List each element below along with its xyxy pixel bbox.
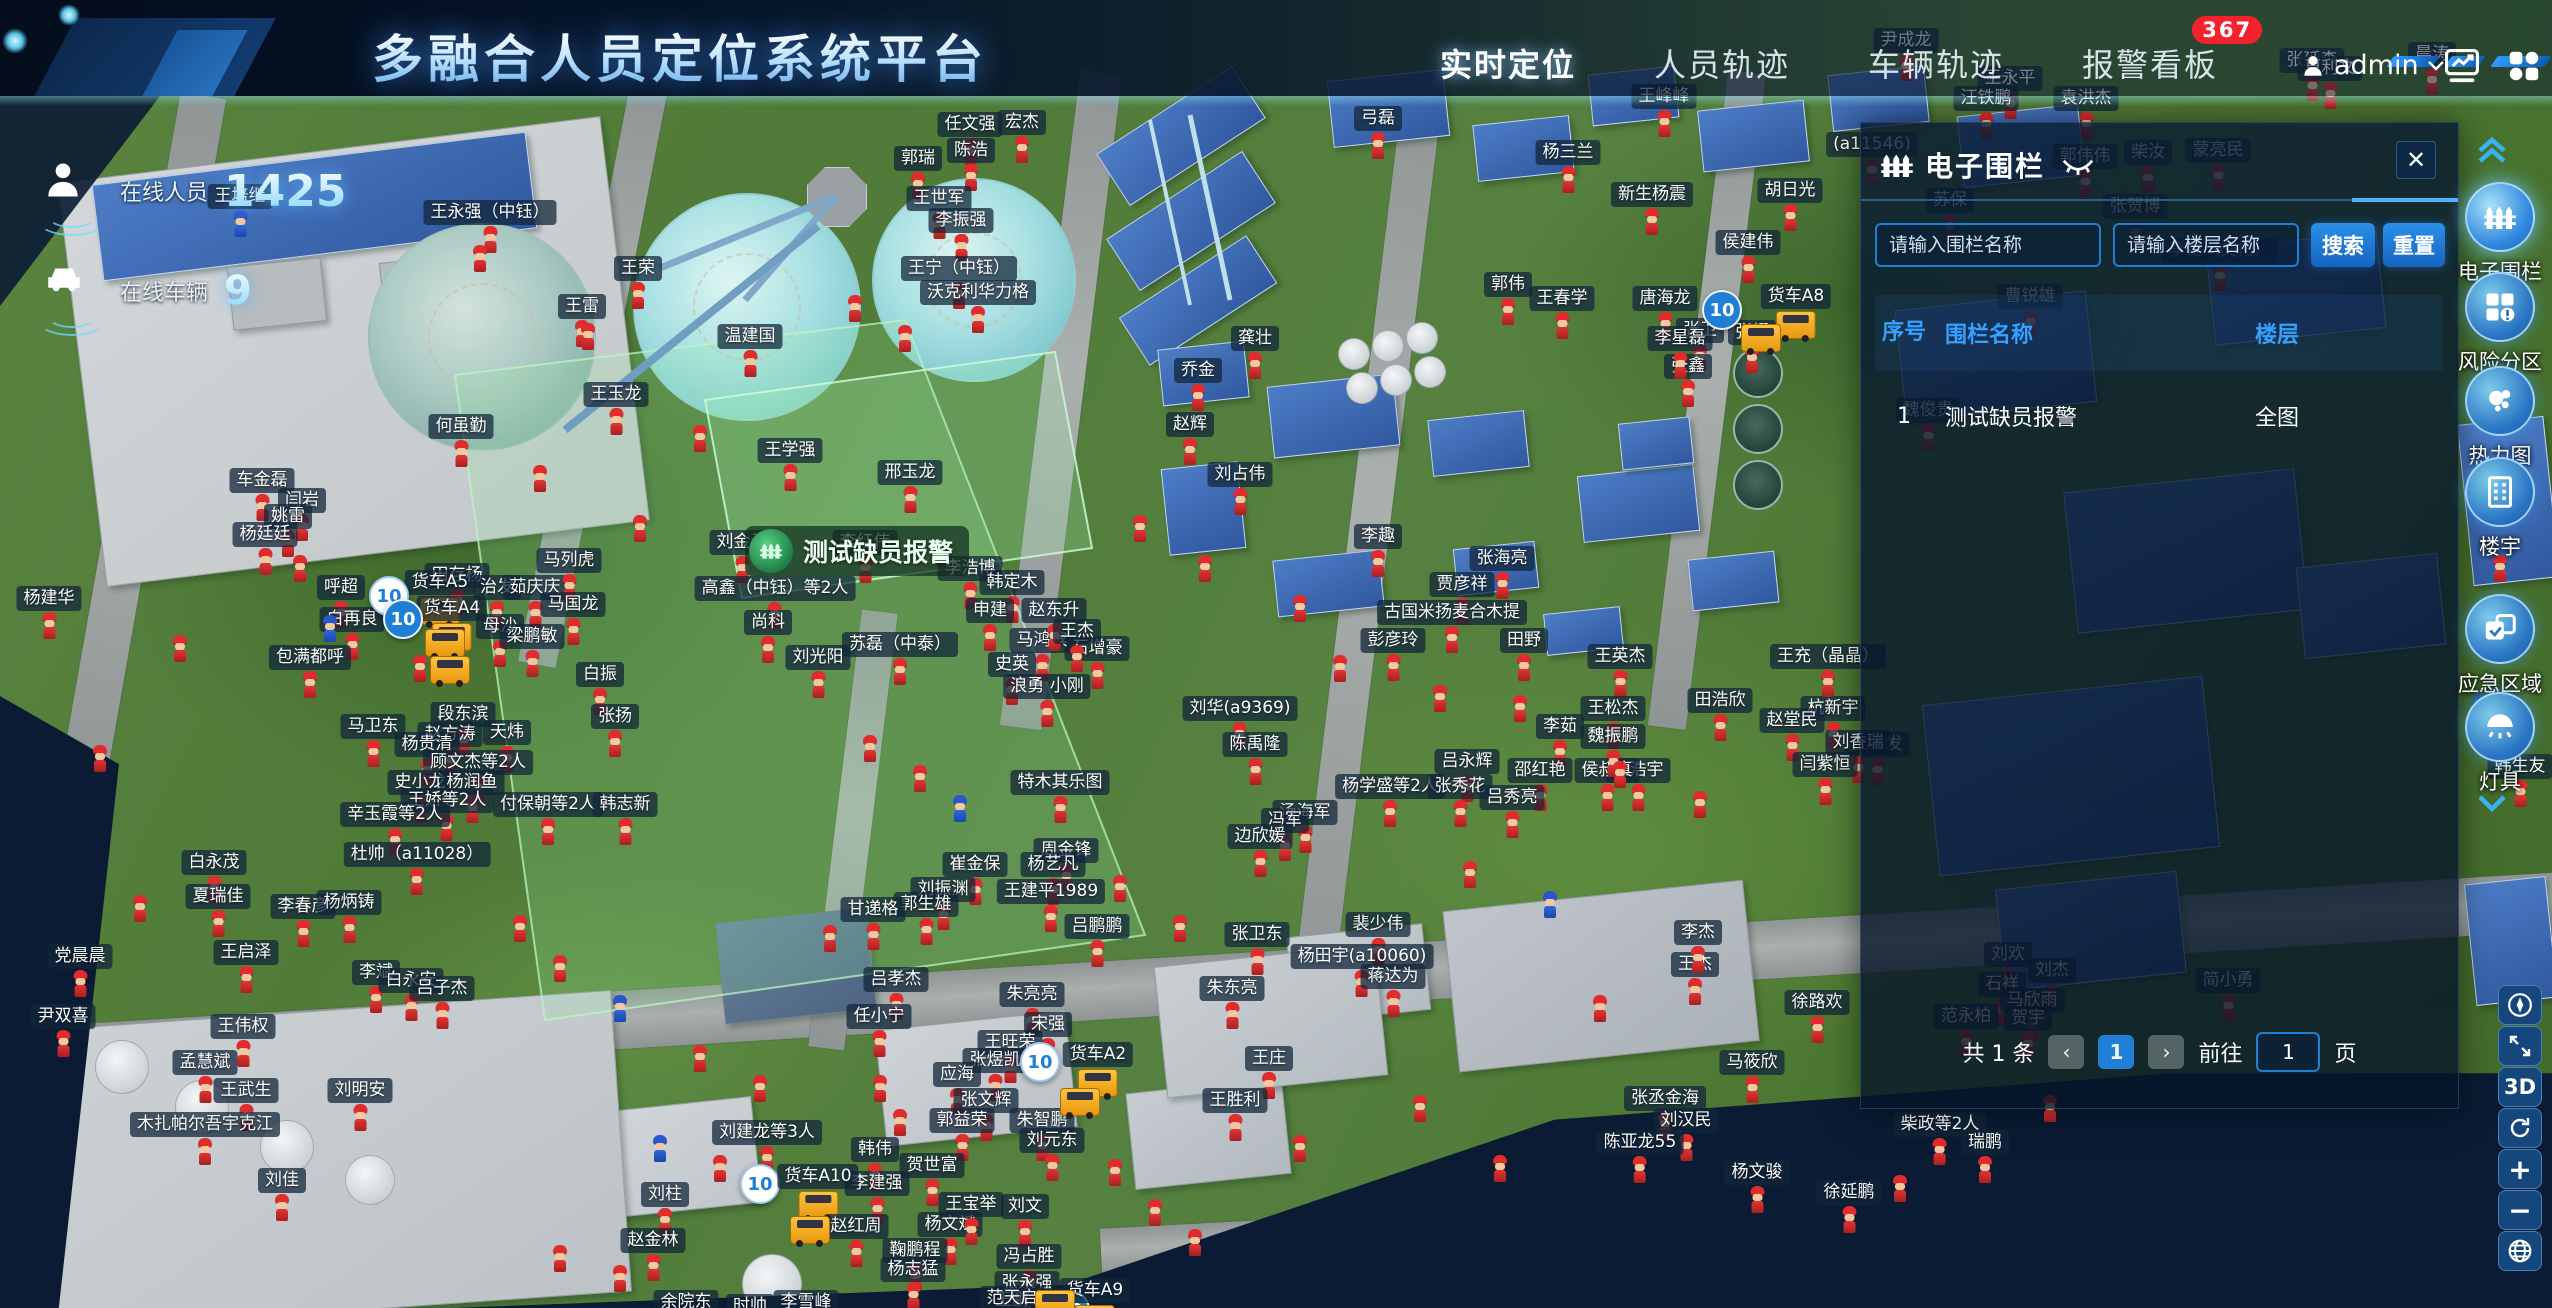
marker-label: 余院东 [654, 1290, 719, 1308]
person-marker[interactable] [551, 1244, 569, 1272]
truck-marker[interactable]: 货车A10 [777, 1164, 858, 1219]
person-marker[interactable]: 王杰 [1053, 619, 1101, 672]
goto-label: 前往 [2198, 1036, 2242, 1068]
nav-tab-0[interactable]: 实时定位 [1440, 40, 1576, 86]
total-count: 共 1 条 [1962, 1036, 2034, 1068]
person-marker[interactable]: 宏杰 [998, 110, 1046, 163]
person-marker[interactable]: 李雪峰 [774, 1290, 839, 1308]
person-marker[interactable]: 邢玉龙 [878, 460, 943, 513]
person-marker[interactable]: 何虽勤 [429, 414, 494, 467]
marker-label: 徐延鹏 [1817, 1180, 1882, 1205]
marker-label: 李雪峰 [774, 1290, 839, 1308]
marker-label: 刘元东 [1020, 1128, 1085, 1153]
person-marker[interactable] [1106, 1158, 1124, 1186]
marker-label: 苏磊（中泰） [842, 632, 958, 657]
marker-label: 刘华(a9369) [1183, 696, 1298, 721]
nav-tab-2[interactable]: 车辆轨迹 [1868, 40, 2004, 86]
marker-label: 蒋达为 [1361, 964, 1426, 989]
fence-panel: 电子围栏 ✕ 搜索 重置 序号 围栏名称 楼层 1测试缺员报警全图 共 1 条 … [1860, 122, 2459, 1109]
person-marker[interactable] [1291, 1134, 1309, 1162]
person-marker[interactable]: 任小宁 [847, 1004, 912, 1057]
marker-label: 郭益荣 [930, 1108, 995, 1133]
marker-label: 应海 [933, 1062, 981, 1087]
marker-label: 彭彦玲 [1361, 628, 1426, 653]
person-marker[interactable]: 龚壮 [1231, 326, 1279, 379]
marker-label: 王启泽 [214, 940, 279, 965]
globe-button[interactable] [2498, 1231, 2542, 1271]
person-marker[interactable] [131, 894, 149, 922]
person-marker[interactable]: 党晨晨 [48, 944, 113, 997]
person-marker[interactable]: 瑞鹏 [1961, 1130, 2009, 1183]
fence-alarm-chip[interactable]: 测试缺员报警 [745, 526, 969, 576]
person-marker[interactable]: 浪勇 小刚 [1003, 674, 1090, 727]
page-unit: 页 [2334, 1036, 2356, 1068]
person-marker[interactable] [531, 464, 549, 492]
user-menu[interactable]: admin [2300, 50, 2445, 81]
building [1688, 551, 1780, 612]
person-marker[interactable]: 张海亮 [1470, 546, 1535, 599]
marker-label: 付保朝等2人 [493, 792, 603, 817]
sphere-tank [1372, 330, 1404, 362]
user-icon [2300, 53, 2326, 79]
marker-label: 刘建龙等3人 [712, 1120, 822, 1145]
person-marker[interactable]: 赵辉 [1166, 412, 1214, 465]
nav-tab-1[interactable]: 人员轨迹 [1654, 40, 1790, 86]
rail-item-label: 楼宇 [2479, 531, 2521, 561]
person-marker[interactable]: 刘元东 [1020, 1128, 1085, 1181]
marker-label: 杨炳铸 [317, 890, 382, 915]
marker-label: 李趣 [1354, 524, 1402, 549]
person-marker[interactable]: 木扎帕尔吾宇克江 [130, 1112, 280, 1165]
nav-tab-3[interactable]: 报警看板367 [2082, 40, 2218, 86]
current-page-button[interactable]: 1 [2098, 1035, 2134, 1069]
person-marker[interactable] [551, 954, 569, 982]
rail-item-热力图[interactable]: 热力图 [2458, 366, 2542, 470]
person-marker[interactable] [91, 744, 109, 772]
person-marker[interactable]: 马筱欣 [1720, 1050, 1785, 1103]
marker-label: 杨文骏 [1725, 1160, 1790, 1185]
marker-label: 王玉龙 [584, 382, 649, 407]
person-marker[interactable]: 杨建华 [17, 586, 82, 639]
marker-label: 韩志新 [593, 792, 658, 817]
person-marker[interactable]: 申建 [966, 598, 1014, 651]
marker-label: 王宁（中钰） [901, 256, 1017, 281]
marker-label: 呼超 [317, 575, 365, 600]
emergency-area-icon [2482, 611, 2518, 647]
person-marker[interactable]: 夏瑞佳 [186, 884, 251, 937]
person-marker[interactable] [871, 1074, 889, 1102]
person-marker[interactable] [711, 1154, 729, 1182]
person-marker[interactable] [1591, 994, 1609, 1022]
marker-label: 赵堂民 [1760, 708, 1825, 733]
marker-label: 龚壮 [1231, 326, 1279, 351]
rail-item-灯具[interactable]: 灯具 [2458, 692, 2542, 796]
person-marker[interactable] [846, 294, 864, 322]
fence-icon [2482, 199, 2518, 235]
person-marker[interactable]: 李振强 [929, 208, 994, 261]
person-marker[interactable]: 边欣媛 [1228, 824, 1293, 877]
rail-scroll-down-icon[interactable] [2474, 792, 2510, 818]
round-tank [345, 1155, 395, 1205]
building [1427, 410, 1529, 477]
person-marker[interactable]: 王宝举 [939, 1192, 1004, 1245]
person-marker[interactable] [891, 1108, 909, 1136]
marker-label: 韩伟 [851, 1137, 899, 1162]
marker-label: 李星磊 [1648, 326, 1713, 351]
person-marker[interactable] [1541, 890, 1559, 918]
marker-label: 张卫东 [1225, 922, 1290, 947]
reset-view-button[interactable] [2498, 1108, 2542, 1148]
3d-toggle-button[interactable]: 3D [2498, 1067, 2542, 1107]
online-personnel-label: 在线人员 [120, 175, 208, 207]
marker-label: 货车A10 [777, 1164, 858, 1189]
marker-label: 吕鹏鹏 [1065, 914, 1130, 939]
cluster-badge[interactable]: 10 [1020, 1042, 1060, 1082]
rail-scroll-up-icon[interactable] [2474, 134, 2510, 168]
marker-label: 温建国 [718, 324, 783, 349]
person-marker[interactable] [1491, 1154, 1509, 1182]
rail-item-电子围栏[interactable]: 电子围栏 [2458, 182, 2542, 286]
person-marker[interactable]: 郭伟 [1484, 272, 1532, 325]
marker-label: 魏振鹏 [1581, 724, 1646, 749]
person-marker[interactable]: 包满都呼 [269, 645, 351, 698]
round-tank [95, 1040, 149, 1094]
marker-label: 王杰 [1053, 619, 1101, 644]
person-marker[interactable]: 侯建伟 [1716, 230, 1781, 283]
vehicles-icon [40, 258, 104, 324]
marker-label: 甘递格 [841, 897, 906, 922]
marker-label: 张海亮 [1470, 546, 1535, 571]
person-marker[interactable] [1461, 860, 1479, 888]
person-marker[interactable]: 王英杰 [1588, 644, 1653, 697]
person-marker[interactable]: 张卫东 [1225, 922, 1290, 975]
person-marker[interactable]: 李星磊 [1648, 326, 1713, 379]
person-marker[interactable]: 杨文骏 [1725, 1160, 1790, 1213]
apps-grid-button[interactable] [2502, 46, 2546, 86]
truck-marker[interactable] [1035, 1288, 1075, 1308]
marker-label: 任文强 [938, 112, 1003, 137]
marker-label: 郭瑞 [894, 146, 942, 171]
marker-label: 刘占伟 [1208, 462, 1273, 487]
floor-name-input[interactable] [2113, 223, 2299, 267]
marker-label: 朱亮亮 [1000, 982, 1065, 1007]
fence-icon [1879, 147, 1915, 183]
person-marker[interactable]: 王胜利 [1203, 1088, 1268, 1141]
person-marker[interactable]: 吕秀亮 [1480, 785, 1545, 838]
marker-label: 党晨晨 [48, 944, 113, 969]
marker-label: 吕子杰 [410, 976, 475, 1001]
person-marker[interactable]: 特木其乐图 [1011, 770, 1110, 823]
truck-marker[interactable] [1741, 322, 1781, 352]
search-button[interactable]: 搜索 [2311, 223, 2375, 267]
person-marker[interactable]: 田野 [1500, 628, 1548, 681]
person-marker[interactable]: 徐路欢 [1785, 990, 1850, 1043]
marker-label: 王春学 [1530, 286, 1595, 311]
person-marker[interactable] [651, 1134, 669, 1162]
panel-divider [1861, 199, 2458, 201]
person-marker[interactable] [611, 994, 629, 1022]
cluster-badge[interactable]: 10 [1702, 290, 1742, 330]
person-marker[interactable]: 田浩欣 [1688, 688, 1753, 741]
rail-item-风险分区[interactable]: 风险分区 [2458, 272, 2542, 376]
person-marker[interactable] [321, 614, 339, 642]
person-marker[interactable]: 陈禹隆 [1223, 732, 1288, 785]
marker-label: 马筱欣 [1720, 1050, 1785, 1075]
person-marker[interactable]: 胡日光 [1758, 178, 1823, 231]
person-marker[interactable]: 赵金林 [621, 1228, 686, 1281]
fullscreen-button[interactable] [2498, 1026, 2542, 1066]
person-marker[interactable]: 尚科 [744, 610, 792, 663]
person-marker[interactable]: 刘佳 [258, 1168, 306, 1221]
person-marker[interactable] [1331, 654, 1349, 682]
person-marker[interactable] [1611, 760, 1629, 788]
person-marker[interactable]: 蒋达为 [1361, 964, 1426, 1017]
person-marker[interactable] [751, 1074, 769, 1102]
person-marker[interactable]: 刘占伟 [1208, 462, 1273, 515]
marker-label: 陈禹隆 [1223, 732, 1288, 757]
person-marker[interactable]: 刘明安 [328, 1078, 393, 1131]
building [1577, 464, 1700, 543]
marker-label: 杨建华 [17, 586, 82, 611]
person-marker[interactable]: 王春学 [1530, 286, 1595, 339]
fence-table-header: 序号 围栏名称 楼层 [1875, 295, 2443, 371]
marker-label: 陈亚龙55 [1597, 1130, 1684, 1155]
truck-marker[interactable] [1060, 1086, 1100, 1116]
person-marker[interactable]: 杨三兰 [1536, 140, 1601, 193]
person-marker[interactable]: 杨炳铸 [317, 890, 382, 943]
marker-label: 特木其乐图 [1011, 770, 1110, 795]
person-marker[interactable] [1186, 1228, 1204, 1256]
tank-ring [428, 283, 536, 391]
zoom-in-button[interactable]: + [2498, 1149, 2542, 1189]
marker-label: 王建平1989 [997, 879, 1105, 904]
person-marker[interactable]: 乔金 [1174, 358, 1222, 411]
person-marker[interactable] [1431, 684, 1449, 712]
marker-label: 王伟权 [211, 1014, 276, 1039]
person-marker[interactable] [579, 322, 597, 350]
online-vehicles-value: 9 [224, 268, 252, 314]
marker-label: 闫紫恒 [1793, 752, 1858, 777]
marker-label: 包满都呼 [269, 645, 351, 670]
person-marker[interactable] [1111, 874, 1129, 902]
person-marker[interactable] [1411, 1094, 1429, 1122]
person-marker[interactable]: 弓磊 [1354, 106, 1402, 159]
person-marker[interactable] [611, 1264, 629, 1292]
building [1697, 100, 1810, 173]
person-marker[interactable]: 王启泽 [214, 940, 279, 993]
person-marker[interactable] [171, 634, 189, 662]
marker-label: 杨廷廷 [233, 522, 298, 547]
goto-page-input[interactable] [2256, 1032, 2320, 1072]
marker-label: 吕秀亮 [1480, 785, 1545, 810]
marker-label: 杨三兰 [1536, 140, 1601, 165]
person-marker[interactable]: 苏磊（中泰） [842, 632, 958, 685]
personnel-icon [40, 158, 104, 224]
person-marker[interactable] [1146, 1198, 1164, 1226]
marker-label: 时帅 [726, 1294, 774, 1308]
next-page-button[interactable]: › [2148, 1035, 2184, 1069]
fence-panel-title: 电子围栏 [1925, 145, 2045, 185]
zoom-out-button[interactable]: − [2498, 1190, 2542, 1230]
marker-label: 王荣 [614, 256, 662, 281]
person-marker[interactable]: 李杰 [1674, 920, 1722, 973]
marker-label: 沃克利华力格 [920, 280, 1036, 305]
marker-label: 赵红周 [824, 1214, 889, 1239]
sphere-tank [1406, 322, 1438, 354]
person-marker[interactable]: 吕鹏鹏 [1065, 914, 1130, 967]
marker-label: 刘柱 [641, 1182, 689, 1207]
marker-label: 王胜利 [1203, 1088, 1268, 1113]
marker-label: 王学强 [758, 438, 823, 463]
risk-zone-icon [2482, 289, 2518, 325]
marker-label: 田野 [1500, 628, 1548, 653]
compass-button[interactable] [2498, 985, 2542, 1025]
person-marker[interactable]: 徐延鹏 [1817, 1180, 1882, 1233]
person-marker[interactable]: 陈浩 [947, 138, 995, 191]
person-marker[interactable]: 王荣 [614, 256, 662, 309]
person-marker[interactable] [1291, 594, 1309, 622]
person-marker[interactable]: 王学强 [758, 438, 823, 491]
marker-label: 乔金 [1174, 358, 1222, 383]
marker-label: 王武生 [214, 1078, 279, 1103]
page-title: 多融合人员定位系统平台 [372, 18, 988, 92]
person-marker[interactable]: 新生杨震 [1611, 182, 1693, 235]
cooling-tower [1733, 404, 1783, 454]
fence-icon [749, 529, 793, 573]
person-marker[interactable]: 王永强（中钰） [424, 200, 557, 253]
person-marker[interactable]: 彭彦玲 [1361, 628, 1426, 681]
marker-label: 唐海龙 [1633, 286, 1698, 311]
cluster-badge[interactable]: 10 [740, 1164, 780, 1204]
person-marker[interactable]: 朱东亮 [1200, 976, 1265, 1029]
person-marker[interactable] [691, 424, 709, 452]
dashboard-chart-button[interactable] [2440, 46, 2484, 86]
tank-farm-pad [30, 990, 632, 1308]
marker-label: 朱东亮 [1200, 976, 1265, 1001]
eye-icon[interactable] [2061, 152, 2095, 178]
person-marker[interactable]: 刘光阳 [786, 645, 851, 698]
truck-marker[interactable] [790, 1214, 830, 1244]
reset-button[interactable]: 重置 [2383, 223, 2445, 267]
truck-marker[interactable] [425, 627, 465, 657]
marker-label: 尚科 [744, 610, 792, 635]
person-marker[interactable] [511, 914, 529, 942]
prev-page-button[interactable]: ‹ [2048, 1035, 2084, 1069]
person-marker[interactable] [911, 764, 929, 792]
marker-label: 刘佳 [258, 1168, 306, 1193]
marker-label: 吕孝杰 [864, 967, 929, 992]
building [1618, 416, 1695, 470]
person-marker[interactable]: 杨志猛 [881, 1257, 946, 1308]
person-marker[interactable] [1891, 1174, 1909, 1202]
marker-label: 古国米扬麦合木提 [1377, 600, 1527, 625]
marker-label: 韩定木 [980, 570, 1045, 595]
person-marker[interactable]: 梁鹏敏 [500, 624, 565, 677]
person-marker[interactable]: 赵红周 [824, 1214, 889, 1267]
marker-label: 赵金林 [621, 1228, 686, 1253]
person-marker[interactable] [861, 734, 879, 762]
marker-label: 任小宁 [847, 1004, 912, 1029]
person-marker[interactable] [1171, 914, 1189, 942]
marker-label: 王雷 [558, 294, 606, 319]
person-marker[interactable]: 杜帅（a11028） [344, 842, 491, 895]
person-marker[interactable]: 温建国 [718, 324, 783, 377]
person-marker[interactable]: 王玉龙 [584, 382, 649, 435]
person-marker[interactable] [951, 794, 969, 822]
marker-label: 邵红艳 [1508, 758, 1573, 783]
person-marker[interactable] [471, 244, 489, 272]
marker-label: 王宝举 [939, 1192, 1004, 1217]
truck-marker[interactable] [430, 654, 470, 684]
marker-label: 马列虎 [537, 548, 602, 573]
username: admin [2334, 50, 2419, 81]
marker-label: 弓磊 [1354, 106, 1402, 131]
person-marker[interactable]: 韩志新 [593, 792, 658, 845]
marker-label: 刘文 [1001, 1194, 1049, 1219]
fence-alarm-label: 测试缺员报警 [803, 533, 953, 569]
marker-label: 何虽勤 [429, 414, 494, 439]
person-marker[interactable]: 吕子杰 [410, 976, 475, 1029]
fence-table-row[interactable]: 1测试缺员报警全图 [1875, 385, 2443, 447]
person-marker[interactable]: 杨廷廷 [233, 522, 298, 575]
marker-label: 邢玉龙 [878, 460, 943, 485]
person-marker[interactable]: 陈亚龙55 [1597, 1130, 1684, 1183]
person-marker[interactable] [1196, 554, 1214, 582]
glow-dot [2, 28, 28, 54]
person-marker[interactable] [631, 514, 649, 542]
person-marker[interactable]: 沃克利华力格 [920, 280, 1036, 333]
person-marker[interactable]: 张扬 [591, 704, 639, 757]
person-marker[interactable]: 甘递格 [841, 897, 906, 950]
person-marker[interactable] [1511, 694, 1529, 722]
pagination: 共 1 条 ‹ 1 › 前往 页 [1861, 1032, 2458, 1072]
online-vehicles-label: 在线车辆 [120, 275, 208, 307]
person-marker[interactable]: 余院东 [654, 1290, 719, 1308]
marker-label: 边欣媛 [1228, 824, 1293, 849]
person-marker[interactable]: 闫紫恒 [1793, 752, 1858, 805]
rail-item-应急区域[interactable]: 应急区域 [2458, 594, 2542, 698]
person-marker[interactable]: 付保朝等2人 [493, 792, 603, 845]
person-marker[interactable]: 尹双喜 [31, 1004, 96, 1057]
rail-item-楼宇[interactable]: 楼宇 [2458, 457, 2542, 561]
person-marker[interactable]: 时帅 [726, 1294, 774, 1308]
marker-label: 王永强（中钰） [424, 200, 557, 225]
marker-label: 马国龙 [541, 592, 606, 617]
person-marker[interactable] [896, 324, 914, 352]
marker-label: 尹双喜 [31, 1004, 96, 1029]
marker-label: 赵辉 [1166, 412, 1214, 437]
column-index: 序号 [1875, 320, 1933, 345]
alarm-count-badge: 367 [2192, 16, 2262, 44]
person-marker[interactable] [821, 924, 839, 952]
marker-label: 白永茂 [182, 850, 247, 875]
cluster-badge[interactable]: 10 [383, 599, 423, 639]
person-marker[interactable] [291, 554, 309, 582]
sphere-tank [1338, 338, 1370, 370]
close-panel-button[interactable]: ✕ [2396, 141, 2436, 179]
person-marker[interactable] [691, 1044, 709, 1072]
person-marker[interactable]: 刘文 [1001, 1194, 1049, 1247]
building-icon [2482, 474, 2518, 510]
person-marker[interactable] [1131, 514, 1149, 542]
marker-label: 货车A8 [1761, 284, 1831, 309]
person-marker[interactable] [411, 654, 429, 682]
person-marker[interactable] [1691, 790, 1709, 818]
header-bar: 多融合人员定位系统平台 实时定位人员轨迹车辆轨迹报警看板367 admin [0, 0, 2552, 96]
marker-label: 李杰 [1674, 920, 1722, 945]
fence-name-input[interactable] [1875, 223, 2101, 267]
person-marker[interactable]: 李趣 [1354, 524, 1402, 577]
